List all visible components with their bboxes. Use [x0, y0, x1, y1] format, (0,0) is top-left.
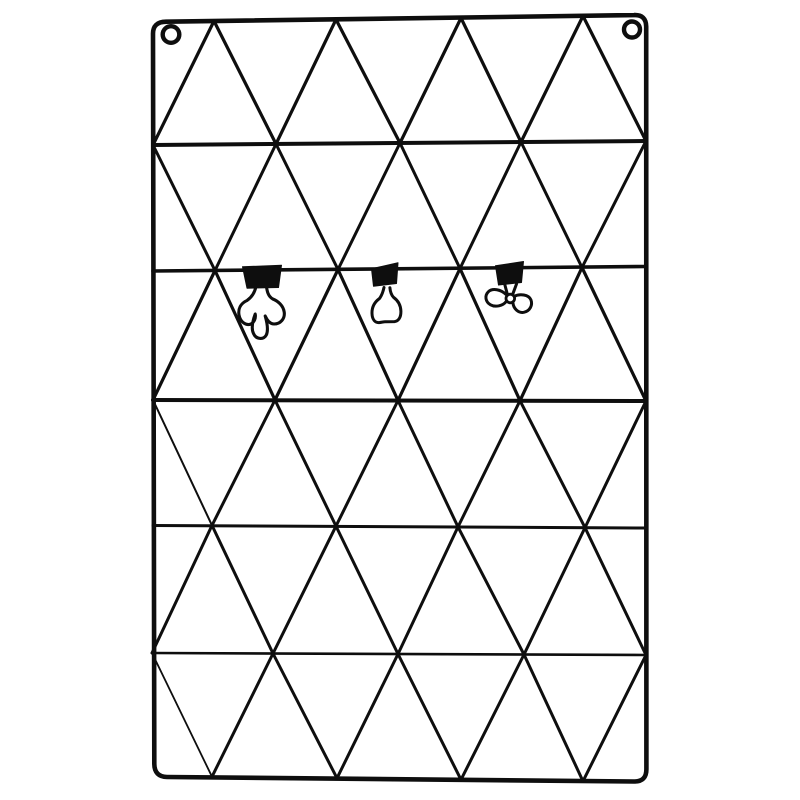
diagonal-wire	[458, 401, 520, 527]
hanging-eyelet-left	[163, 26, 180, 43]
diagonal-wire	[583, 655, 646, 781]
diagonal-wire	[521, 16, 583, 142]
diagonal-wire	[398, 527, 458, 654]
diagonal-wire	[398, 269, 460, 401]
diagonal-wire	[585, 401, 646, 528]
diagonal-wire	[524, 528, 585, 655]
clip-handle-wire	[239, 286, 285, 339]
clip-handle-wire	[513, 284, 517, 295]
diagonal-wire	[520, 401, 585, 528]
diagonal-wire	[582, 141, 646, 268]
diagonal-wire	[336, 401, 398, 527]
diagonal-wire	[153, 271, 215, 401]
product-photo-stage	[0, 0, 800, 800]
diagonal-wire	[336, 20, 400, 144]
clip-body	[243, 265, 282, 288]
diagonal-wire	[461, 18, 521, 142]
diagonal-wire	[520, 268, 582, 401]
diagonal-wire	[400, 143, 460, 269]
diagonal-wire	[153, 145, 215, 271]
diagonal-wire	[398, 654, 461, 780]
diagonal-wire	[521, 142, 582, 268]
diagonal-wire	[212, 525, 273, 653]
diagonal-wire	[276, 20, 336, 145]
clip-body	[496, 262, 524, 286]
clip-handle-wire	[486, 290, 506, 307]
clip-handle-wire	[372, 288, 401, 323]
diagonal-wire	[582, 268, 646, 402]
diagonal-wire	[153, 400, 212, 525]
memo-board	[152, 15, 646, 781]
diagonal-wire	[524, 655, 583, 782]
horizontal-wire	[153, 267, 646, 272]
diagonal-wire	[337, 654, 398, 778]
diagonal-wire	[398, 401, 458, 527]
diagonal-wire	[460, 269, 520, 401]
diagonal-wire	[214, 21, 276, 144]
diagonal-wire	[460, 142, 521, 269]
clip-handle-knot	[506, 294, 515, 303]
diagonal-wire	[212, 400, 275, 525]
diagonal-wire	[275, 400, 336, 526]
binder-clip-splayed-handle	[239, 265, 285, 338]
diagonal-wire	[400, 18, 461, 143]
diagonal-wire	[276, 144, 338, 270]
diagonal-wire	[273, 654, 337, 779]
diagonal-wire	[212, 654, 273, 777]
horizontal-wire	[153, 526, 646, 529]
diagonal-wire	[215, 144, 276, 271]
diagonal-wire	[152, 525, 212, 653]
hanging-eyelet-right	[624, 22, 640, 38]
memo-board-svg	[0, 0, 800, 800]
diagonal-wire	[585, 528, 646, 655]
diagonal-wire	[336, 526, 398, 654]
diagonal-wire	[275, 270, 338, 401]
diagonal-wire	[461, 655, 524, 780]
diagonal-wire	[273, 526, 336, 653]
diagonal-wire	[338, 143, 400, 270]
diagonal-wire	[152, 653, 212, 777]
diagonal-wire	[458, 527, 524, 655]
binder-clip-bell-handle	[372, 263, 401, 323]
clip-body	[372, 263, 399, 286]
